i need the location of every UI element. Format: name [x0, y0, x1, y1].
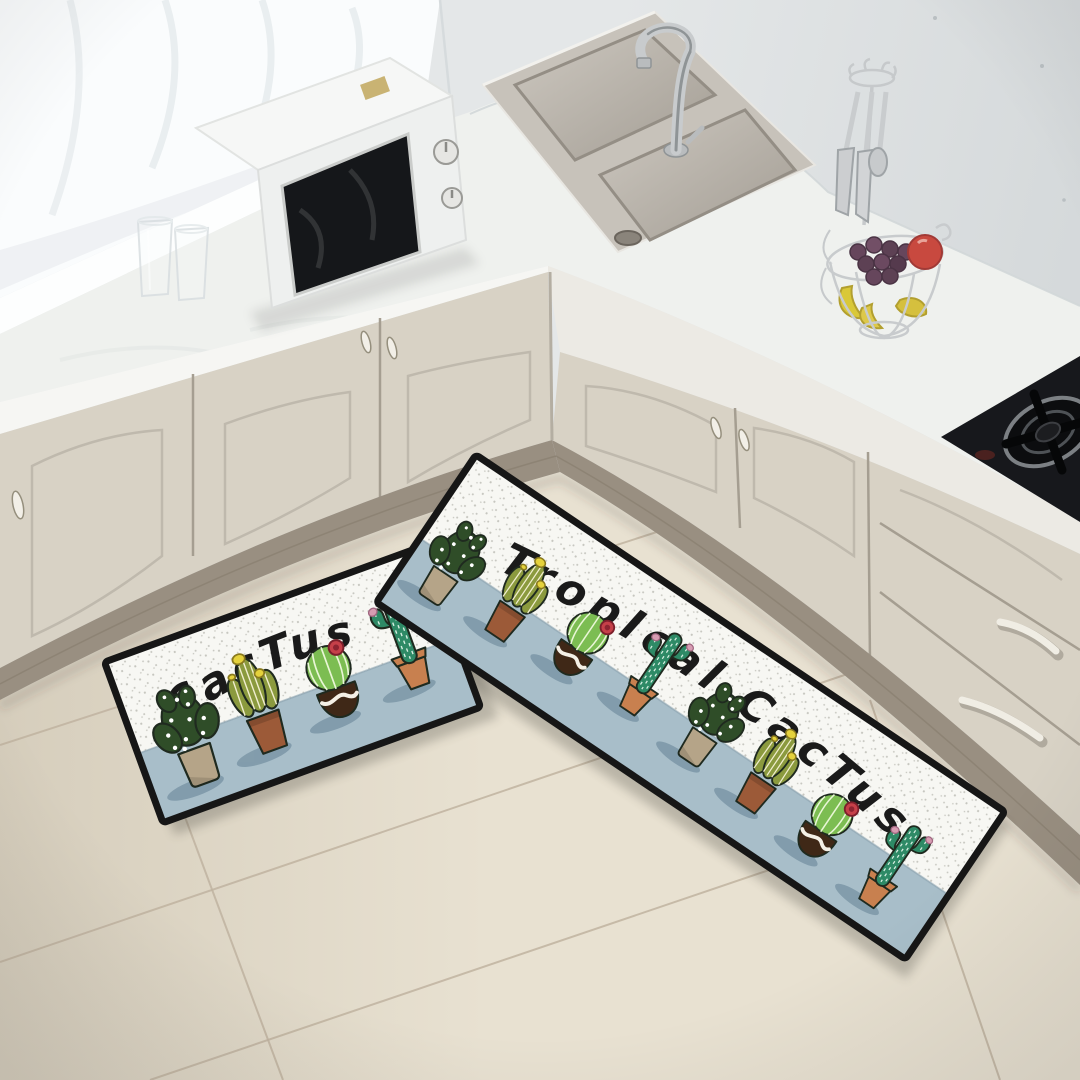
photo-vignette	[0, 0, 1080, 1080]
kitchen-photo: CacTus TropIcal CacTus	[0, 0, 1080, 1080]
kitchen-scene-svg: CacTus TropIcal CacTus	[0, 0, 1080, 1080]
